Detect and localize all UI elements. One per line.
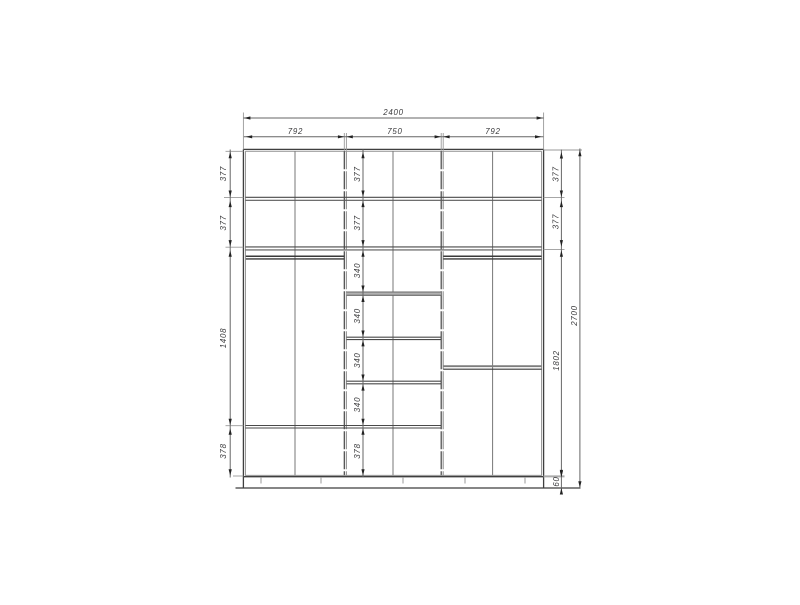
svg-text:340: 340 — [353, 308, 362, 323]
svg-text:377: 377 — [219, 166, 228, 181]
svg-text:340: 340 — [353, 352, 362, 367]
svg-text:377: 377 — [353, 215, 362, 230]
svg-text:340: 340 — [353, 397, 362, 412]
svg-text:377: 377 — [353, 166, 362, 181]
svg-text:60: 60 — [552, 476, 561, 486]
svg-text:378: 378 — [353, 443, 362, 458]
svg-text:377: 377 — [219, 215, 228, 230]
svg-text:2700: 2700 — [570, 305, 579, 327]
svg-text:2400: 2400 — [382, 108, 404, 117]
svg-text:792: 792 — [288, 127, 303, 136]
svg-text:377: 377 — [552, 214, 561, 229]
svg-text:1802: 1802 — [552, 350, 561, 371]
svg-text:377: 377 — [552, 166, 561, 181]
svg-text:750: 750 — [387, 127, 402, 136]
svg-text:1408: 1408 — [219, 328, 228, 349]
svg-text:792: 792 — [485, 127, 500, 136]
svg-text:340: 340 — [353, 263, 362, 278]
svg-text:378: 378 — [219, 443, 228, 458]
